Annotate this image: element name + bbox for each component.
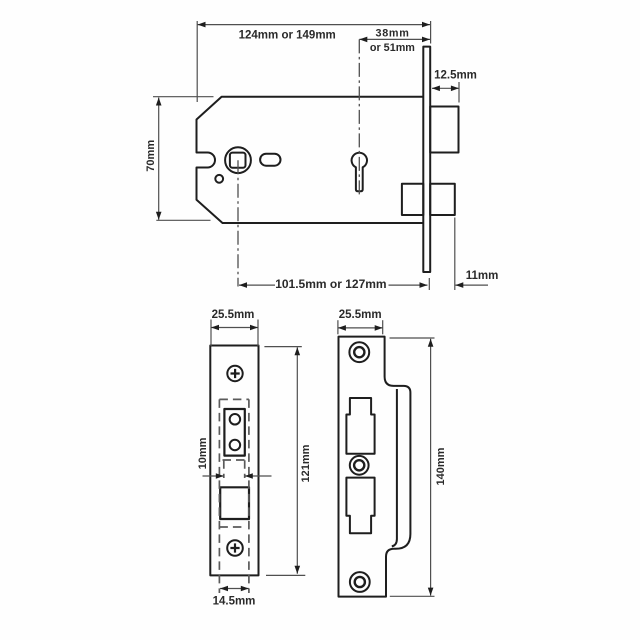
svg-text:25.5mm: 25.5mm <box>339 309 382 321</box>
svg-text:11mm: 11mm <box>466 270 499 282</box>
svg-text:121mm: 121mm <box>300 444 312 482</box>
svg-text:or 51mm: or 51mm <box>370 42 415 54</box>
svg-text:38mm: 38mm <box>375 27 409 39</box>
svg-text:101.5mm or 127mm: 101.5mm or 127mm <box>275 277 386 291</box>
svg-text:14.5mm: 14.5mm <box>213 596 256 608</box>
svg-text:124mm or 149mm: 124mm or 149mm <box>239 29 336 41</box>
svg-text:10mm: 10mm <box>197 437 209 469</box>
svg-text:140mm: 140mm <box>435 447 447 485</box>
svg-text:12.5mm: 12.5mm <box>434 70 477 82</box>
svg-text:25.5mm: 25.5mm <box>212 309 255 321</box>
svg-text:70mm: 70mm <box>145 140 157 172</box>
